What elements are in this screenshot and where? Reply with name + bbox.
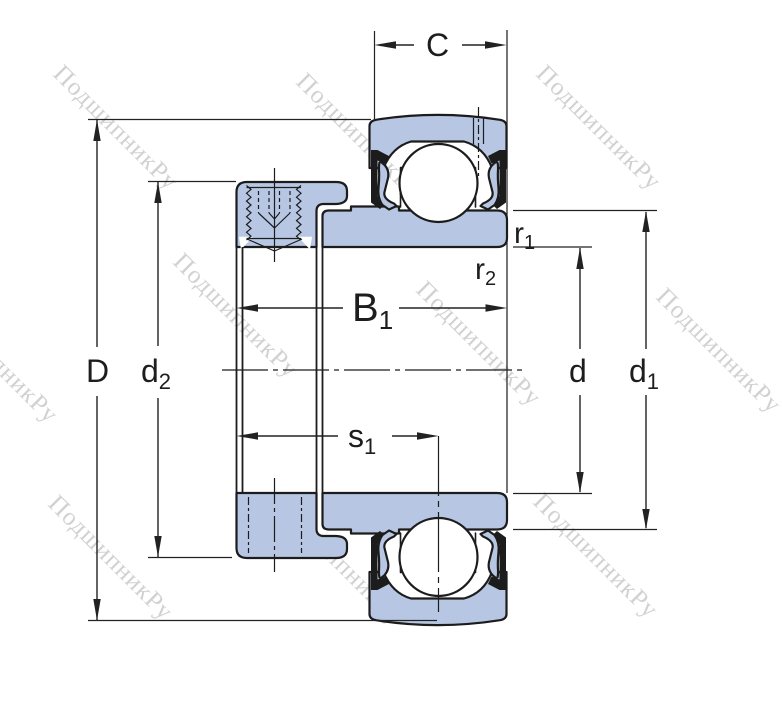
watermark-text: ПодшипникРу bbox=[0, 293, 63, 429]
arrowhead bbox=[642, 211, 649, 232]
label-d2: d2 bbox=[141, 353, 171, 394]
label-B1: B1 bbox=[352, 286, 393, 335]
watermark-text: ПодшипникРу bbox=[168, 248, 304, 384]
watermark-text: ПодшипникРу bbox=[48, 60, 184, 196]
arrowhead bbox=[237, 432, 259, 439]
ball bbox=[400, 144, 478, 222]
watermark-text: ПодшипникРу bbox=[531, 60, 667, 196]
label-r1: r1 bbox=[514, 217, 535, 254]
bearing-top-half bbox=[237, 115, 508, 247]
arrowhead bbox=[485, 41, 507, 49]
arrowhead bbox=[486, 304, 508, 311]
arrowhead bbox=[576, 248, 583, 270]
label-D: D bbox=[86, 353, 109, 389]
label-s1: s1 bbox=[348, 418, 376, 459]
seal-right bbox=[481, 150, 507, 210]
arrowhead bbox=[576, 472, 583, 493]
label-C: C bbox=[426, 27, 449, 63]
dimension-d2: d2 bbox=[141, 182, 236, 558]
dimension-s1: s1 bbox=[237, 418, 439, 459]
label-d1: d1 bbox=[629, 353, 659, 394]
watermark-text: ПодшипникРу bbox=[528, 488, 664, 624]
watermark-text: ПодшипникРу bbox=[651, 283, 782, 419]
arrowhead bbox=[417, 432, 439, 439]
bearing-bottom-half bbox=[237, 493, 508, 625]
arrowhead bbox=[154, 536, 161, 557]
arrowhead bbox=[375, 41, 397, 49]
label-d: d bbox=[569, 353, 587, 389]
label-r2: r2 bbox=[475, 253, 496, 290]
bearing-drawing-page: ПодшипникРу ПодшипникРу ПодшипникРу Подш… bbox=[0, 0, 782, 704]
arrowhead bbox=[642, 509, 649, 530]
arrowhead bbox=[93, 599, 100, 621]
watermark-text: ПодшипникРу bbox=[411, 276, 547, 412]
dimension-C: C bbox=[375, 27, 507, 119]
bearing-cross-section: ПодшипникРу ПодшипникРу ПодшипникРу Подш… bbox=[0, 0, 782, 704]
